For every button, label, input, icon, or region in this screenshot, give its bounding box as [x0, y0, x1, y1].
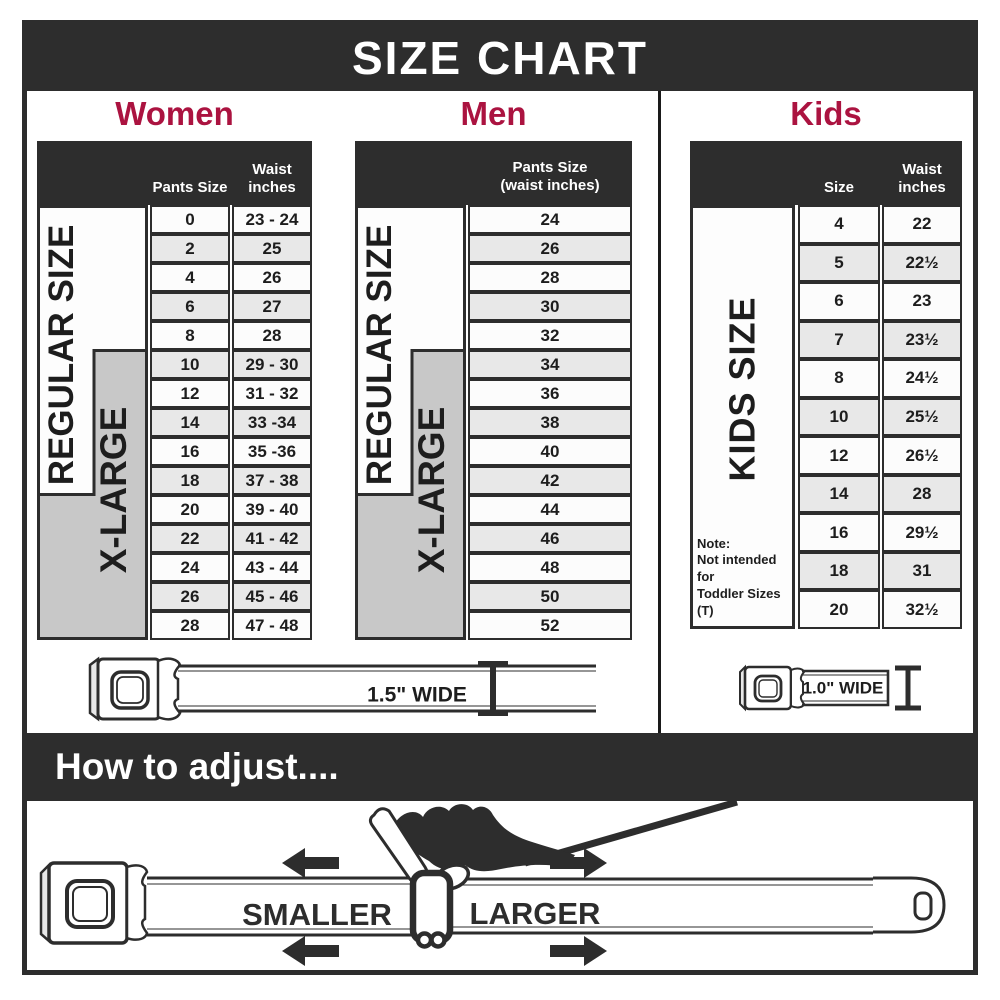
table-cell: 30: [468, 292, 632, 321]
table-cell: 31 - 32: [232, 379, 312, 408]
men-pants-size-column: 242628303234363840424446485052: [468, 205, 632, 640]
table-cell: 41 - 42: [232, 524, 312, 553]
how-to-adjust-bar: How to adjust....: [27, 733, 973, 801]
kids-col-header-size: Size: [798, 179, 880, 197]
women-size-table: Pants Size Waist inches REGULAR SIZE X-L…: [37, 141, 312, 640]
table-cell: 14: [150, 408, 230, 437]
title-bar: SIZE CHART: [27, 25, 973, 91]
table-cell: 10: [798, 398, 880, 437]
women-regular-label: REGULAR SIZE: [42, 225, 81, 486]
table-cell: 36: [468, 379, 632, 408]
table-cell: 26½: [882, 436, 962, 475]
men-table-header: Pants Size (waist inches): [355, 141, 632, 205]
seatbelt-buckle-icon: [41, 863, 147, 943]
table-cell: 12: [150, 379, 230, 408]
women-waist-column: 23 - 242526272829 - 3031 - 3233 -3435 -3…: [232, 205, 312, 640]
table-cell: 42: [468, 466, 632, 495]
kids-heading: Kids: [690, 95, 962, 133]
table-cell: 26: [232, 263, 312, 292]
table-cell: 20: [150, 495, 230, 524]
table-cell: 23: [882, 282, 962, 321]
table-cell: 8: [798, 359, 880, 398]
arrow-left-icon: [282, 936, 339, 966]
table-cell: 43 - 44: [232, 553, 312, 582]
men-xlarge-label: X-LARGE: [411, 407, 452, 574]
kids-size-label: KIDS SIZE: [722, 296, 764, 481]
women-xlarge-label: X-LARGE: [93, 407, 134, 574]
kids-belt-width-label: 1.0" WIDE: [803, 678, 884, 697]
seatbelt-buckle-icon: [90, 659, 180, 720]
table-cell: 26: [150, 582, 230, 611]
table-cell: 8: [150, 321, 230, 350]
table-cell: 33 -34: [232, 408, 312, 437]
belt-adjustment-illustration: SMALLER LARGER: [27, 801, 973, 970]
kids-waist-column: 2222½2323½24½25½26½2829½3132½: [882, 205, 962, 629]
width-measure-icon: [895, 668, 921, 708]
men-regular-label: REGULAR SIZE: [360, 225, 399, 486]
arrow-left-icon: [282, 848, 339, 878]
table-cell: 48: [468, 553, 632, 582]
men-size-range-labels: REGULAR SIZE X-LARGE: [355, 205, 466, 645]
table-cell: 50: [468, 582, 632, 611]
table-cell: 38: [468, 408, 632, 437]
table-cell: 22½: [882, 244, 962, 283]
table-cell: 52: [468, 611, 632, 640]
belt-tip: [873, 878, 944, 932]
table-cell: 32½: [882, 590, 962, 629]
table-cell: 44: [468, 495, 632, 524]
table-cell: 28: [232, 321, 312, 350]
women-heading: Women: [37, 95, 312, 133]
kids-table-header: Size Waist inches: [690, 141, 962, 205]
table-cell: 12: [798, 436, 880, 475]
kids-panel: Kids Size Waist inches KIDS SIZE Note: N…: [661, 91, 973, 733]
adult-belt-illustration: 1.5" WIDE: [40, 646, 660, 730]
how-to-adjust-heading: How to adjust....: [55, 746, 339, 788]
table-cell: 32: [468, 321, 632, 350]
seatbelt-buckle-icon: [740, 667, 804, 709]
table-cell: 46: [468, 524, 632, 553]
women-size-range-graphic: REGULAR SIZE X-LARGE: [37, 205, 148, 640]
table-cell: 16: [150, 437, 230, 466]
women-col-header-waist: Waist inches: [232, 161, 312, 197]
table-cell: 40: [468, 437, 632, 466]
kids-size-table: Size Waist inches KIDS SIZE Note: Not in…: [690, 141, 962, 629]
table-cell: 23 - 24: [232, 205, 312, 234]
table-cell: 5: [798, 244, 880, 283]
table-cell: 18: [798, 552, 880, 591]
kids-belt-illustration: 1.0" WIDE: [735, 655, 935, 717]
table-cell: 25: [232, 234, 312, 263]
table-cell: 20: [798, 590, 880, 629]
table-cell: 29 - 30: [232, 350, 312, 379]
table-cell: 16: [798, 513, 880, 552]
women-size-range-labels: REGULAR SIZE X-LARGE: [37, 205, 148, 645]
table-cell: 23½: [882, 321, 962, 360]
table-cell: 4: [150, 263, 230, 292]
adult-belt-width-label: 1.5" WIDE: [367, 684, 467, 707]
kids-note: Note: Not intended for Toddler Sizes (T): [697, 536, 792, 620]
women-pants-size-column: 0246810121416182022242628: [150, 205, 230, 640]
larger-label: LARGER: [470, 896, 601, 931]
table-cell: 6: [150, 292, 230, 321]
table-cell: 29½: [882, 513, 962, 552]
table-cell: 31: [882, 552, 962, 591]
table-cell: 24½: [882, 359, 962, 398]
table-cell: 22: [150, 524, 230, 553]
table-cell: 24: [468, 205, 632, 234]
table-cell: 47 - 48: [232, 611, 312, 640]
women-col-header-size: Pants Size: [150, 179, 230, 197]
table-cell: 34: [468, 350, 632, 379]
table-cell: 27: [232, 292, 312, 321]
table-cell: 6: [798, 282, 880, 321]
content-panels: Women Men Pants Size Waist inches REGULA…: [27, 91, 973, 733]
table-cell: 45 - 46: [232, 582, 312, 611]
arrow-right-icon: [550, 936, 607, 966]
size-chart-frame: SIZE CHART Women Men Pants Size Waist in…: [22, 20, 978, 975]
table-cell: 2: [150, 234, 230, 263]
men-heading: Men: [355, 95, 632, 133]
table-cell: 14: [798, 475, 880, 514]
table-cell: 4: [798, 205, 880, 244]
table-cell: 18: [150, 466, 230, 495]
table-cell: 22: [882, 205, 962, 244]
table-cell: 25½: [882, 398, 962, 437]
table-cell: 10: [150, 350, 230, 379]
table-cell: 28: [468, 263, 632, 292]
kids-col-header-waist: Waist inches: [882, 161, 962, 197]
kids-size-range-label: KIDS SIZE Note: Not intended for Toddler…: [690, 205, 795, 629]
page-title: SIZE CHART: [352, 31, 648, 85]
men-size-range-graphic: REGULAR SIZE X-LARGE: [355, 205, 466, 640]
table-cell: 0: [150, 205, 230, 234]
table-cell: 28: [882, 475, 962, 514]
table-cell: 28: [150, 611, 230, 640]
belt-adjuster-slider: [413, 873, 450, 947]
smaller-label: SMALLER: [242, 897, 392, 932]
men-size-table: Pants Size (waist inches) REGULAR SIZE X…: [355, 141, 632, 640]
table-cell: 24: [150, 553, 230, 582]
table-cell: 26: [468, 234, 632, 263]
table-cell: 37 - 38: [232, 466, 312, 495]
men-col-header: Pants Size (waist inches): [468, 159, 632, 195]
table-cell: 35 -36: [232, 437, 312, 466]
table-cell: 7: [798, 321, 880, 360]
table-cell: 39 - 40: [232, 495, 312, 524]
adult-panel: Women Men Pants Size Waist inches REGULA…: [27, 91, 658, 733]
women-table-header: Pants Size Waist inches: [37, 141, 312, 205]
kids-size-column: 45678101214161820: [798, 205, 880, 629]
